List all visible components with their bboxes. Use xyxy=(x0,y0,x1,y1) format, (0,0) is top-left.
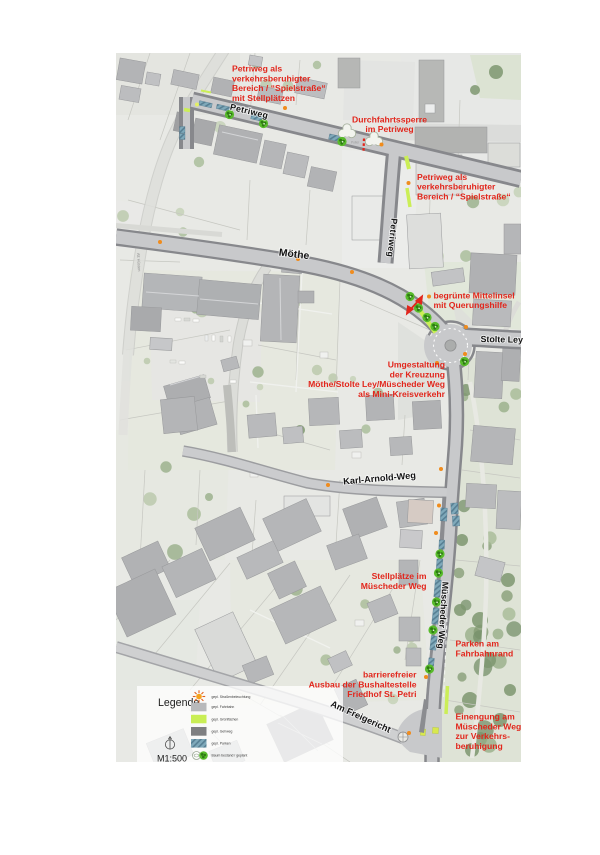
svg-text:Poller: Poller xyxy=(351,141,360,145)
svg-text:im Petriweg: im Petriweg xyxy=(365,124,413,134)
svg-text:zur Verkehrs-: zur Verkehrs- xyxy=(456,731,511,741)
svg-text:mit Stellplätzen: mit Stellplätzen xyxy=(232,93,295,103)
svg-text:M1:500: M1:500 xyxy=(157,754,187,764)
svg-text:Möthe/Stolte Ley/Müscheder Weg: Möthe/Stolte Ley/Müscheder Weg xyxy=(308,379,445,389)
svg-text:als Mini-Kreisverkehr: als Mini-Kreisverkehr xyxy=(358,389,446,399)
svg-text:Stellplätze im: Stellplätze im xyxy=(372,571,427,581)
svg-text:gepl. Grünflächen: gepl. Grünflächen xyxy=(212,717,239,721)
svg-text:gepl. Straßenbeleuchtung: gepl. Straßenbeleuchtung xyxy=(212,695,251,699)
svg-text:gepl. Fahrbahn: gepl. Fahrbahn xyxy=(212,705,235,709)
svg-text:gepl. Parken: gepl. Parken xyxy=(212,742,231,746)
svg-text:Müscheder Weg: Müscheder Weg xyxy=(361,581,427,591)
svg-text:begrünte Mittelinsel: begrünte Mittelinsel xyxy=(434,290,515,300)
svg-text:beruhigung: beruhigung xyxy=(456,741,503,751)
svg-text:Bereich / “Spielstraße“: Bereich / “Spielstraße“ xyxy=(232,83,326,93)
svg-text:Fahrbahnrand: Fahrbahnrand xyxy=(456,648,514,658)
svg-text:barrierefreier: barrierefreier xyxy=(363,670,417,680)
svg-text:Einengung am: Einengung am xyxy=(456,712,516,722)
svg-text:gepl. Gehweg: gepl. Gehweg xyxy=(212,730,233,734)
svg-text:verkehrsberuhigter: verkehrsberuhigter xyxy=(417,182,496,192)
svg-text:Umgestaltung: Umgestaltung xyxy=(388,360,445,370)
svg-text:verkehrsberuhigter: verkehrsberuhigter xyxy=(232,73,311,83)
svg-text:Parken am: Parken am xyxy=(456,639,500,649)
svg-text:mit Querungshilfe: mit Querungshilfe xyxy=(434,300,508,310)
svg-text:Petriweg als: Petriweg als xyxy=(232,64,282,74)
svg-text:Petriweg als: Petriweg als xyxy=(417,172,467,182)
svg-text:Baum bestand / geplant: Baum bestand / geplant xyxy=(212,754,248,758)
svg-text:Bereich / “Spielstraße“: Bereich / “Spielstraße“ xyxy=(417,191,511,201)
svg-text:Stolte Ley: Stolte Ley xyxy=(480,334,523,345)
svg-text:der Kreuzung: der Kreuzung xyxy=(390,369,445,379)
svg-text:Durchfahrtssperre: Durchfahrtssperre xyxy=(352,114,427,124)
svg-text:Friedhof St. Petri: Friedhof St. Petri xyxy=(347,689,416,699)
svg-text:Müscheder Weg: Müscheder Weg xyxy=(456,721,522,731)
svg-text:Alt Hüsten: Alt Hüsten xyxy=(136,253,142,272)
svg-text:Ausbau der Bushaltestelle: Ausbau der Bushaltestelle xyxy=(309,679,417,689)
